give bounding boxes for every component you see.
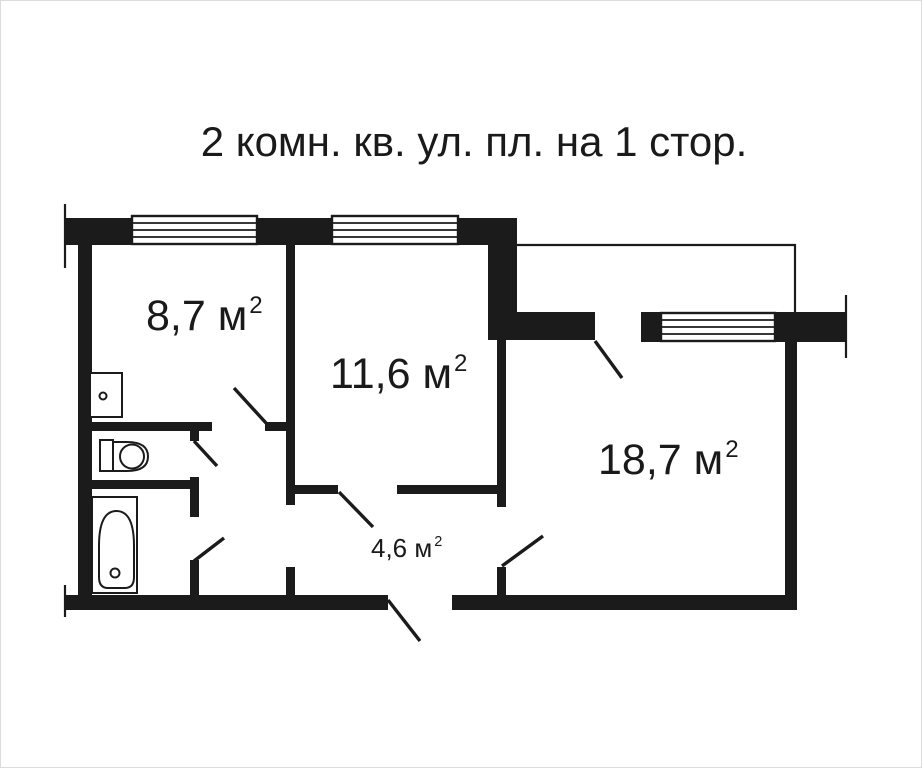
pier-wall-vertical <box>488 243 517 340</box>
hallway-area-value: 4,6 м <box>371 533 432 563</box>
entrance-door-swing <box>388 600 420 641</box>
bath-door-swing <box>194 538 224 561</box>
right-exterior-wall <box>785 342 797 600</box>
bedroom-door-swing <box>339 492 373 527</box>
kitchen-door-swing <box>234 388 266 423</box>
living-window-wall-left <box>641 312 661 342</box>
living-window-wall-right <box>775 312 846 342</box>
wc-door-stub <box>190 431 199 441</box>
hallway-bedroom-wall-right <box>397 485 502 494</box>
living-door-swing <box>502 536 543 566</box>
kitchen-door-stub <box>265 422 295 431</box>
hallway-area-label: 4,6 м2 <box>371 535 442 562</box>
top-wall-left-segment <box>66 218 132 245</box>
kitchen-area-label: 8,7 м2 <box>146 294 263 339</box>
floor-plan: 2 комн. кв. ул. пл. на 1 стор. <box>0 0 922 768</box>
kitchen-area-value: 8,7 м <box>146 292 247 340</box>
hallway-area-sup: 2 <box>434 534 442 550</box>
bedroom-area-sup: 2 <box>454 350 467 377</box>
wc-bath-wall <box>88 480 190 489</box>
kitchen-window <box>132 216 257 244</box>
balcony-door-swing <box>595 341 622 378</box>
living-room-window <box>661 313 775 341</box>
kitchen-bedroom-wall <box>286 243 295 505</box>
walls <box>66 218 846 610</box>
toilet-icon <box>100 440 148 471</box>
bath-east-wall-upper <box>190 477 199 517</box>
living-room-area-label: 18,7 м2 <box>598 438 739 483</box>
bottom-wall-right-segment <box>452 595 797 610</box>
bedroom-living-wall <box>497 340 506 507</box>
pier-wall-horizontal <box>517 312 595 340</box>
kitchen-south-wall <box>88 422 212 431</box>
balcony-outline <box>517 245 795 313</box>
hallway-bedroom-wall-left <box>295 485 338 494</box>
bathtub-icon <box>92 497 137 593</box>
bedroom-area-value: 11,6 м <box>330 350 452 398</box>
top-wall-middle-segment <box>257 218 332 245</box>
hallway-left-stub <box>286 567 295 595</box>
bedroom-area-label: 11,6 м2 <box>330 352 467 397</box>
bedroom-window <box>332 216 458 244</box>
bottom-wall-left-segment <box>66 595 388 610</box>
living-room-area-value: 18,7 м <box>598 436 723 484</box>
wc-door-swing <box>194 441 217 466</box>
thin-lines <box>65 204 846 617</box>
living-room-area-sup: 2 <box>725 436 738 463</box>
top-wall-right-segment <box>458 218 517 245</box>
kitchen-area-sup: 2 <box>249 292 262 319</box>
stove-icon <box>90 373 122 417</box>
bath-east-wall-lower <box>190 560 199 597</box>
living-door-stub <box>497 567 506 595</box>
